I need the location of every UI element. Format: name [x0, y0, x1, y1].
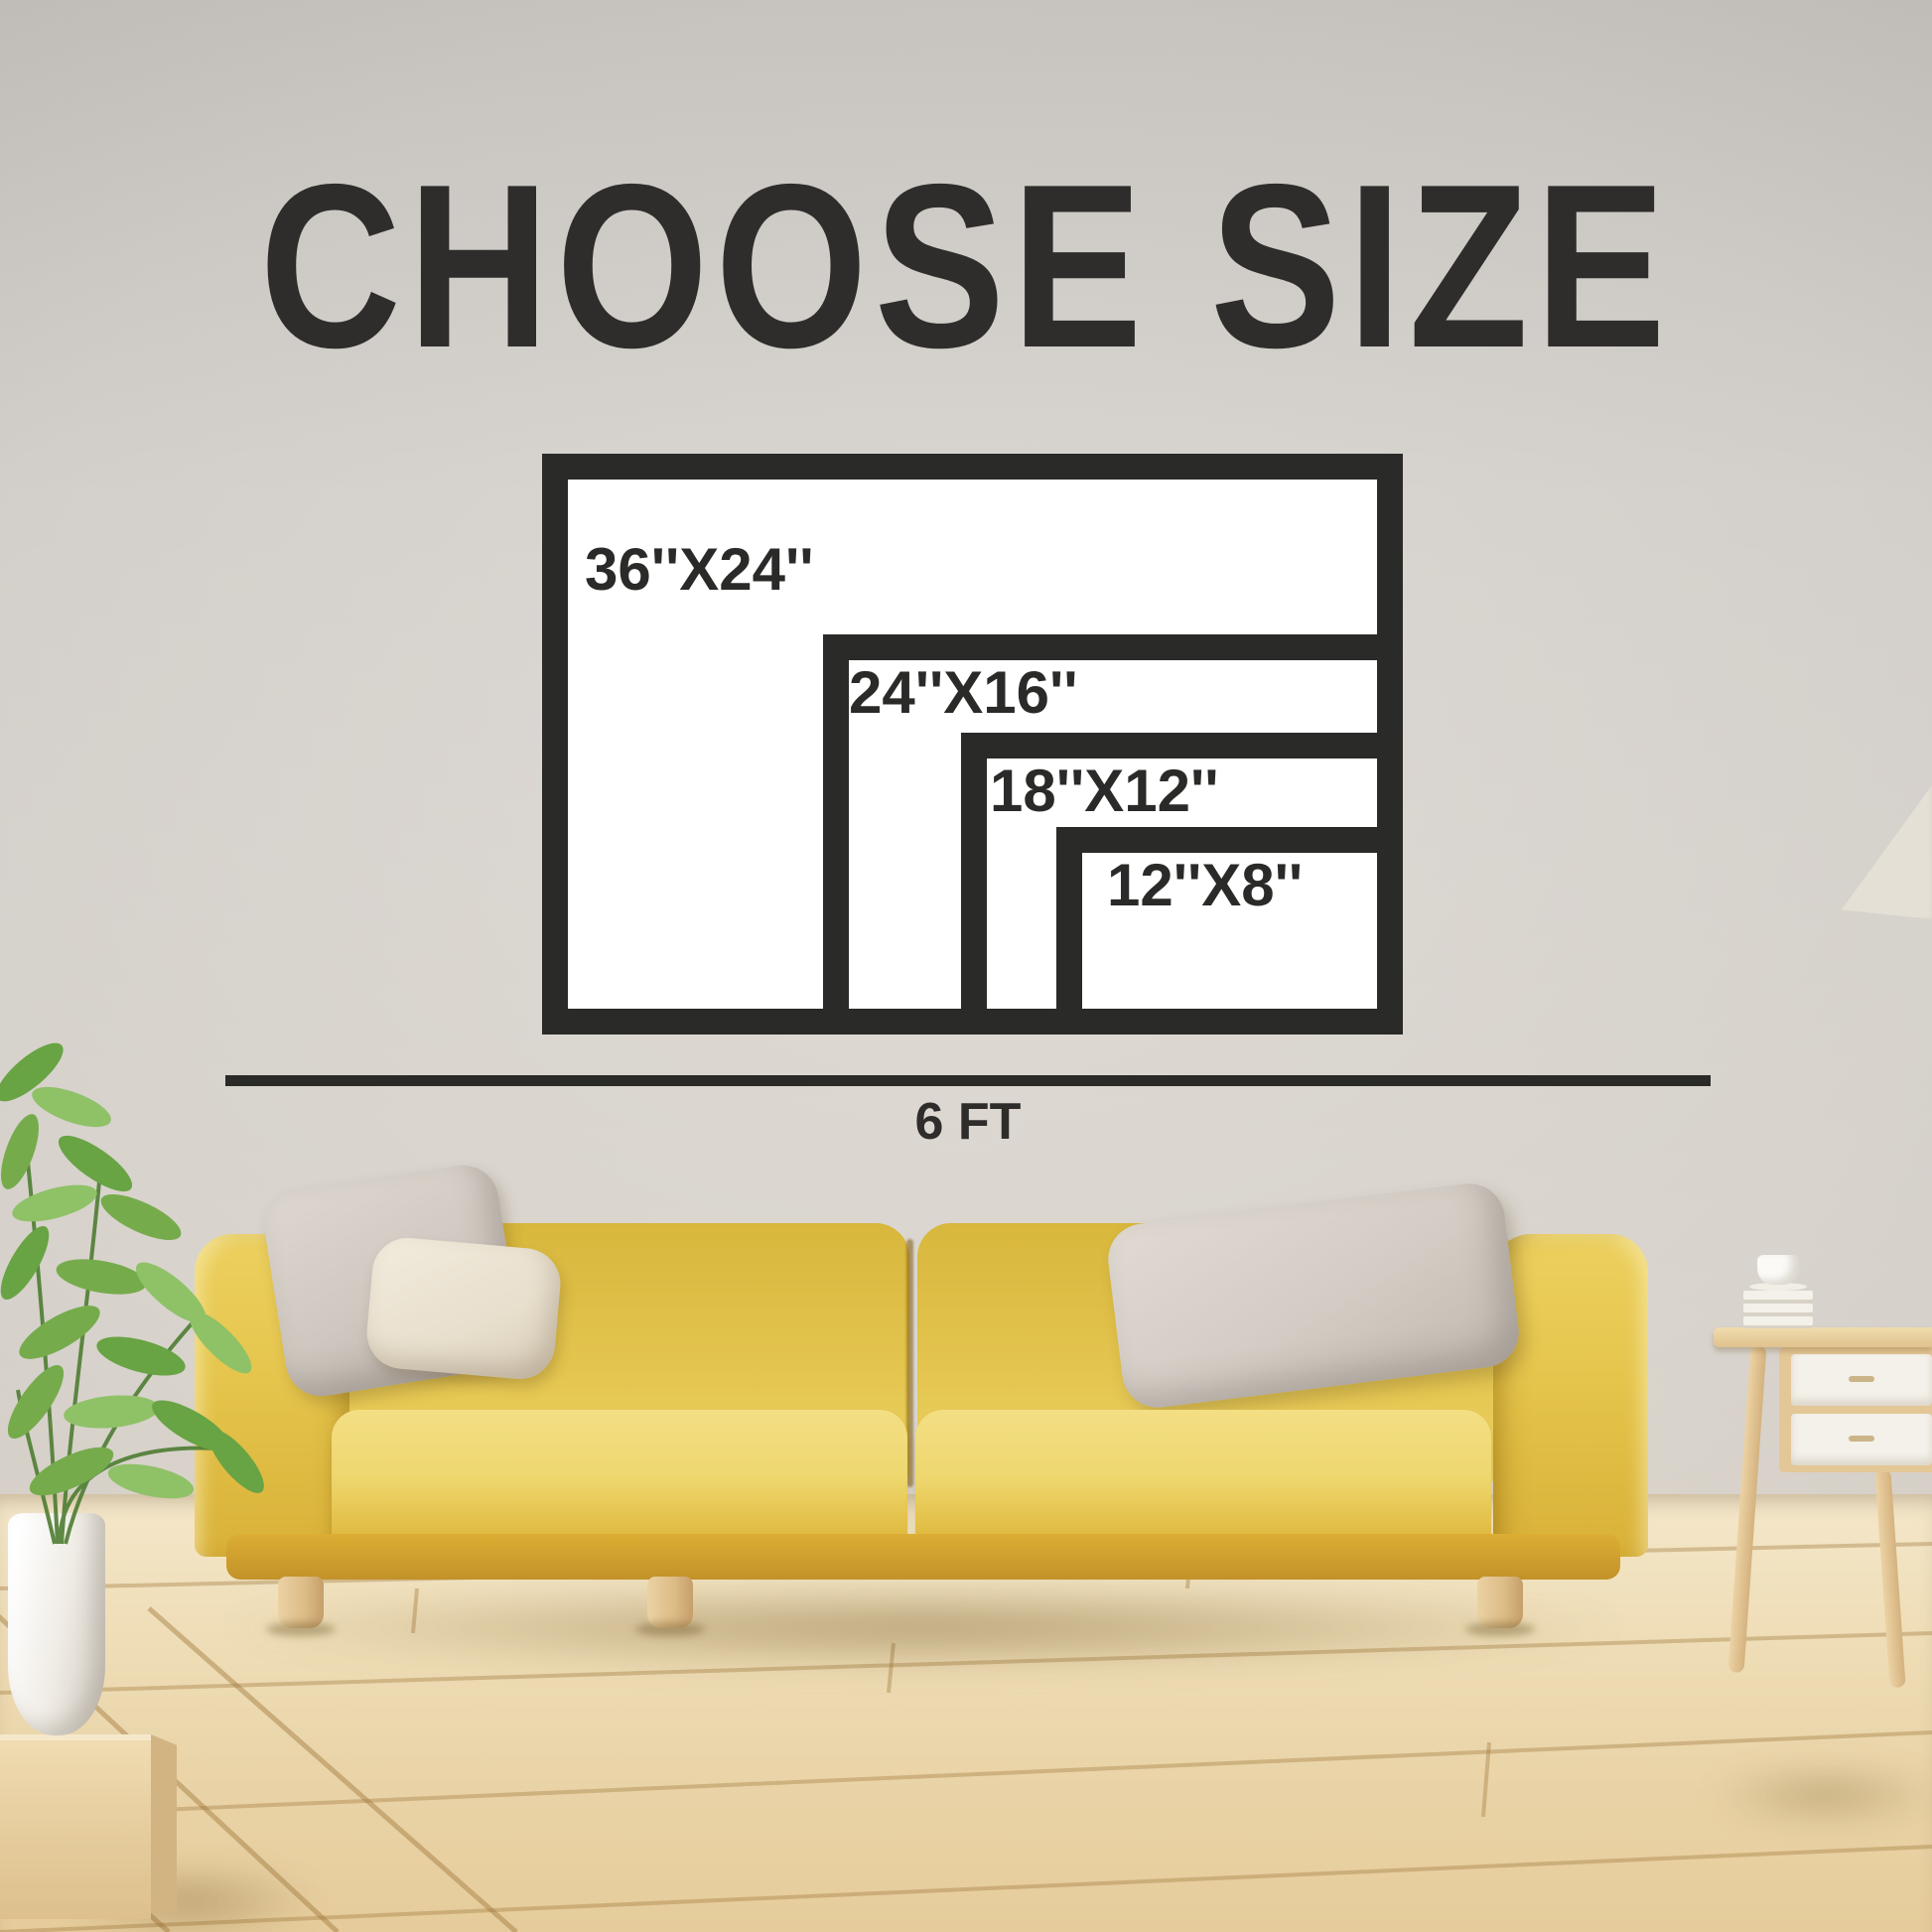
- sofa-leg-shadow: [1465, 1622, 1535, 1636]
- sofa-leg: [278, 1577, 324, 1628]
- side-table-shadow: [1708, 1767, 1932, 1823]
- sofa-leg-shadow: [266, 1622, 336, 1636]
- sofa-leg: [1477, 1577, 1523, 1628]
- sofa-leg: [647, 1577, 693, 1628]
- cube-side-table-edge: [151, 1734, 177, 1913]
- size-label-36x24: 36''X24'': [585, 536, 814, 603]
- sofa-floor-shadow: [208, 1585, 1638, 1670]
- cube-side-table: [0, 1734, 151, 1919]
- book: [1743, 1291, 1813, 1303]
- side-table-top: [1714, 1327, 1932, 1347]
- book: [1743, 1316, 1813, 1328]
- drawer-handle: [1849, 1436, 1874, 1442]
- coffee-cup: [1757, 1255, 1799, 1285]
- scale-bar: [225, 1075, 1711, 1086]
- sofa-leg-shadow: [635, 1622, 705, 1636]
- scale-label: 6 FT: [225, 1092, 1711, 1152]
- drawer-handle: [1849, 1376, 1874, 1382]
- size-label-12x8: 12''X8'': [1107, 852, 1303, 918]
- product-size-guide-image: CHOOSE SIZE 36''X24'' 24''X16'' 18''X12'…: [0, 0, 1932, 1932]
- sofa-arm-right: [1493, 1234, 1648, 1557]
- sofa-back-seam: [906, 1239, 913, 1487]
- book-stack: [1743, 1291, 1813, 1328]
- book: [1743, 1304, 1813, 1315]
- potted-plant: [0, 1013, 298, 1549]
- page-title: CHOOSE SIZE: [155, 149, 1778, 382]
- size-label-18x12: 18''X12'': [990, 758, 1219, 824]
- size-label-24x16: 24''X16'': [849, 659, 1078, 726]
- size-comparison-diagram: 36''X24'' 24''X16'' 18''X12'' 12''X8'': [542, 454, 1403, 1035]
- pillow-cream: [364, 1235, 564, 1382]
- sofa-base-frame: [226, 1534, 1620, 1580]
